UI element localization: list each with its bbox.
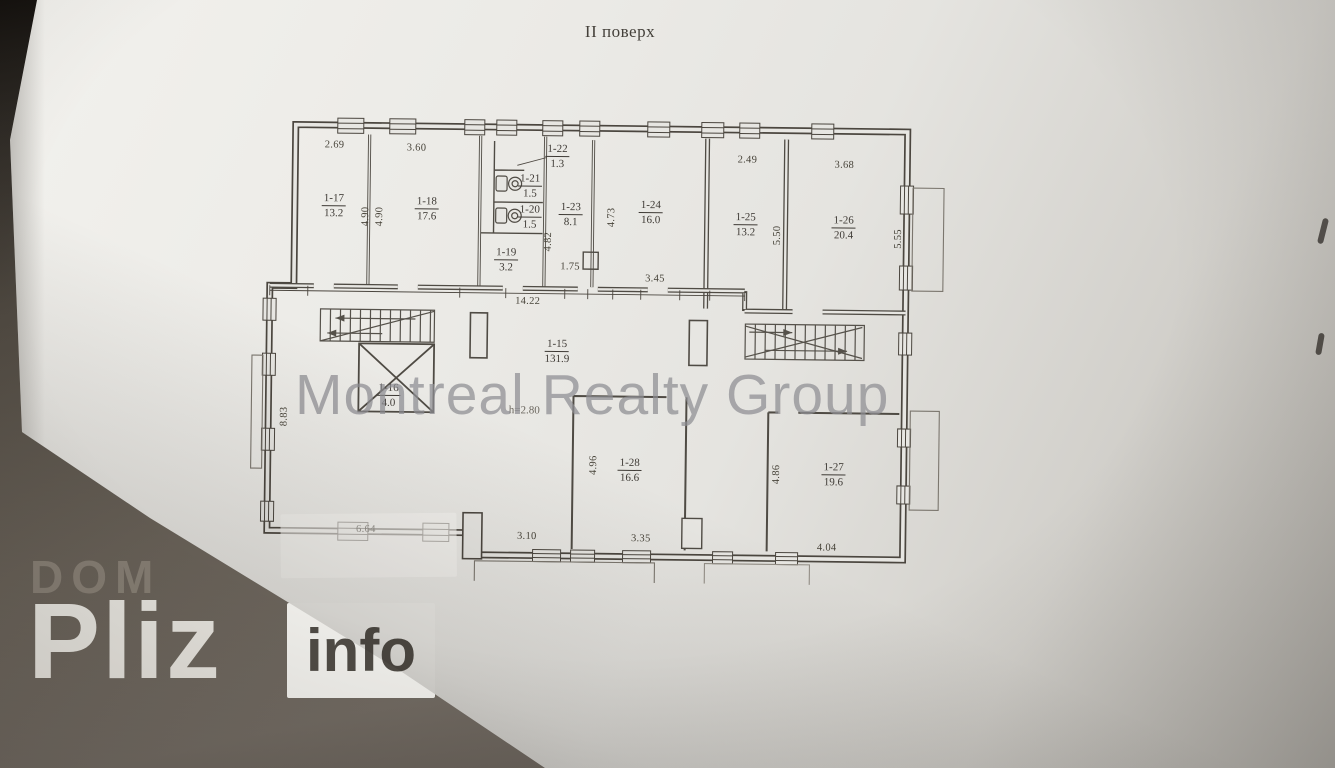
dim-label: 6.64: [356, 524, 376, 535]
dim-label: 4.90: [374, 207, 385, 227]
dim-label: 8.83: [279, 407, 290, 427]
dim-label: 2.49: [738, 154, 758, 165]
dim-label: 1.75: [560, 261, 580, 272]
dimension-line: [270, 154, 747, 301]
dim-label: 5.55: [893, 229, 904, 249]
page-title: II поверх: [540, 22, 700, 42]
room-number: 1-18: [415, 194, 439, 210]
room-label-1-22: 1-221.3: [545, 142, 570, 172]
room-area: 13.2: [736, 225, 755, 240]
room-number: 1-28: [618, 456, 642, 472]
room-area: 1.5: [523, 218, 537, 232]
room-label-1-28: 1-2816.6: [617, 456, 642, 486]
dim-label: 4.86: [771, 465, 782, 485]
dim-label: 3.45: [645, 273, 665, 284]
room-number: 1-21: [518, 171, 542, 187]
room-number: 1-25: [734, 210, 758, 226]
room-area: 16.0: [641, 213, 660, 228]
dim-label: 3.35: [631, 533, 651, 544]
dim-label: 3.68: [834, 160, 854, 171]
correction-patch: [280, 513, 457, 579]
room-area: 16.6: [620, 471, 639, 486]
room-number: 1-24: [639, 198, 663, 214]
room-number: 1-22: [545, 142, 569, 158]
logo-info-badge: info: [287, 603, 435, 698]
columns: [470, 313, 708, 366]
room-area: 1.3: [550, 157, 564, 171]
room-label-1-17: 1-1713.2: [322, 191, 347, 221]
room-number: 1-15: [545, 337, 569, 353]
floor-plan: 1-1713.2 1-1817.6 1-221.3 1-211.5 1-201.…: [244, 108, 950, 587]
room-number: 1-23: [559, 200, 583, 216]
room-label-1-21: 1-211.5: [518, 171, 543, 201]
dim-label: 4.82: [543, 232, 554, 252]
dim-label: 4.90: [360, 207, 371, 227]
room-label-1-23: 1-238.1: [558, 200, 583, 230]
room-area: 19.6: [824, 476, 843, 491]
dim-label: 4.96: [588, 455, 599, 475]
dim-label: 4.73: [606, 208, 617, 228]
room-area: 17.6: [417, 210, 436, 225]
room-label-1-25: 1-2513.2: [733, 210, 758, 240]
room-number: 1-27: [821, 460, 845, 476]
room-number: 1-17: [322, 191, 346, 207]
room-number: 1-26: [831, 213, 855, 229]
room-area: 13.2: [324, 206, 343, 221]
room-label-1-27: 1-2719.6: [821, 460, 846, 490]
floor-plan-photo: II поверх: [0, 0, 1335, 768]
dim-label: 4.04: [817, 542, 837, 553]
room-label-1-26: 1-2620.4: [831, 213, 856, 243]
logo-pliz-text: Pliz: [28, 578, 222, 703]
room-label-1-24: 1-2416.0: [638, 198, 663, 228]
dim-label: 14.22: [515, 296, 540, 307]
room-area: 3.2: [499, 261, 513, 275]
windows-top: [338, 118, 834, 139]
dim-label: 5.50: [772, 226, 783, 246]
staircase-left-icon: [320, 309, 434, 342]
room-area: 1.5: [523, 187, 537, 201]
room-area: 8.1: [564, 215, 578, 229]
dim-label: 2.69: [325, 139, 345, 150]
room-label-1-20: 1-201.5: [517, 202, 542, 232]
room-area: 20.4: [834, 229, 853, 244]
agency-watermark: Montreal Realty Group: [295, 362, 1055, 428]
room-label-1-19: 1-193.2: [494, 245, 519, 275]
room-number: 1-20: [518, 202, 542, 218]
dim-label: 3.60: [407, 142, 427, 153]
room-label-1-18: 1-1817.6: [415, 194, 440, 224]
staircase-right-icon: [745, 324, 864, 360]
room-number: 1-19: [494, 245, 518, 261]
dim-label: 3.10: [517, 531, 537, 542]
